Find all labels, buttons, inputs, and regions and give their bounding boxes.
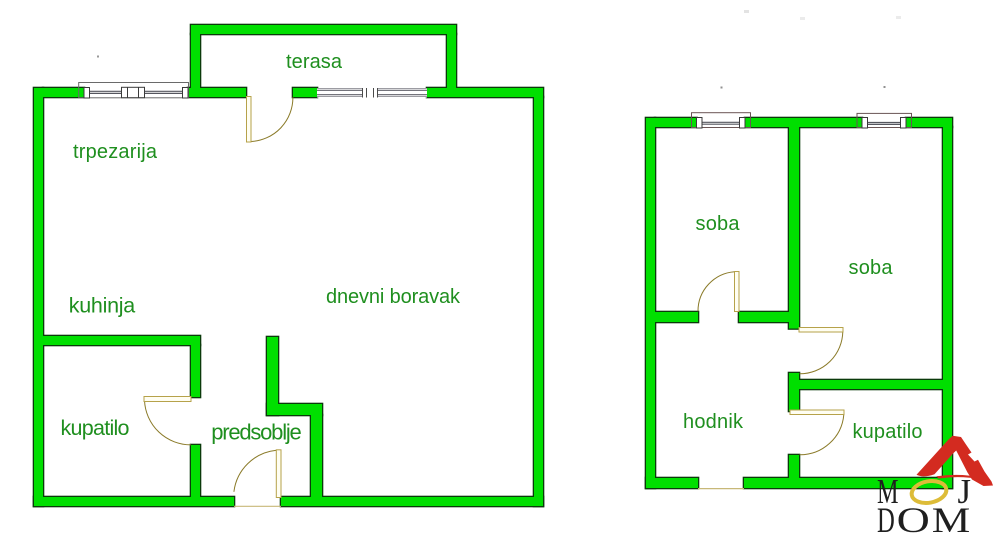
- svg-text:O: O: [897, 500, 930, 540]
- svg-text:M: M: [932, 500, 971, 540]
- svg-text:terasa: terasa: [286, 51, 343, 73]
- svg-text:D: D: [877, 500, 895, 540]
- svg-text:hodnik: hodnik: [683, 411, 744, 433]
- svg-text:soba: soba: [696, 213, 741, 235]
- svg-text:predsoblje: predsoblje: [211, 420, 302, 445]
- svg-text:dnevni boravak: dnevni boravak: [326, 286, 461, 308]
- svg-text:trpezarija: trpezarija: [73, 141, 158, 163]
- svg-text:kuhinja: kuhinja: [69, 294, 136, 318]
- svg-text:kupatilo: kupatilo: [853, 421, 923, 443]
- svg-text:kupatilo: kupatilo: [61, 416, 130, 440]
- svg-text:soba: soba: [849, 257, 894, 279]
